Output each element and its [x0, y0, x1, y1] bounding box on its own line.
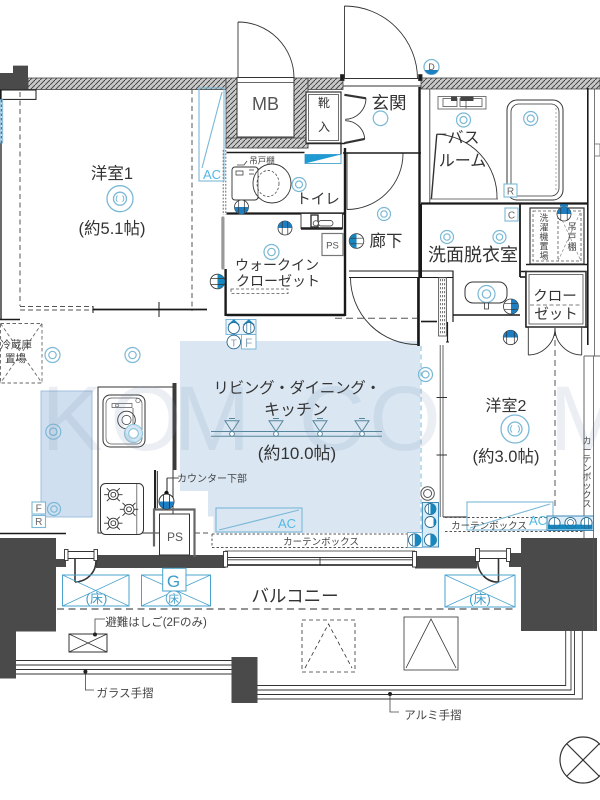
svg-text:(床): (床)	[86, 591, 108, 606]
svg-text:C: C	[508, 211, 515, 222]
svg-text:PS: PS	[326, 241, 339, 252]
svg-text:吊戸棚: 吊戸棚	[249, 156, 275, 166]
svg-text:洗面脱衣室: 洗面脱衣室	[428, 245, 518, 265]
svg-text:バス: バス	[447, 130, 479, 147]
svg-text:M: M	[550, 368, 600, 470]
svg-text:ガラス手摺: ガラス手摺	[96, 686, 153, 700]
svg-text:AC: AC	[529, 513, 547, 528]
svg-text:PS: PS	[167, 530, 183, 544]
svg-text:R: R	[35, 517, 42, 528]
svg-text:洋室2: 洋室2	[486, 397, 527, 415]
svg-text:R: R	[507, 187, 514, 198]
svg-text:D: D	[428, 62, 435, 72]
svg-text:ゼット: ゼット	[534, 306, 578, 323]
svg-text:カウンター下部: カウンター下部	[177, 472, 247, 485]
svg-text:冷蔵庫: 冷蔵庫	[1, 338, 33, 351]
svg-text:AC: AC	[278, 516, 296, 531]
svg-text:O: O	[110, 368, 182, 470]
svg-text:K: K	[41, 368, 102, 470]
svg-text:MB: MB	[252, 94, 279, 114]
svg-text:吊戸棚: 吊戸棚	[567, 222, 576, 252]
svg-text:F: F	[36, 504, 42, 515]
svg-text:玄関: 玄関	[372, 93, 407, 113]
svg-text:(床): (床)	[469, 592, 491, 607]
svg-text:トイレ: トイレ	[296, 192, 340, 208]
svg-text:C: C	[299, 368, 365, 470]
svg-text:バルコニー: バルコニー	[251, 586, 338, 606]
svg-text:カーテンボックス: カーテンボックス	[451, 521, 527, 532]
svg-text:クローゼット: クローゼット	[236, 273, 320, 289]
svg-text:クロー: クロー	[533, 288, 577, 305]
svg-text:(約3.0帖): (約3.0帖)	[473, 447, 540, 466]
svg-text:F: F	[245, 336, 252, 350]
svg-text:廊下: 廊下	[370, 232, 403, 251]
svg-text:洗濯機置場: 洗濯機置場	[539, 212, 548, 261]
svg-text:O: O	[369, 368, 441, 470]
svg-text:ルーム: ルーム	[439, 153, 487, 170]
svg-text:AC: AC	[203, 167, 221, 182]
svg-text:カーテンボックス: カーテンボックス	[283, 537, 359, 548]
svg-text:T: T	[231, 339, 237, 350]
svg-text:ウォークイン: ウォークイン	[235, 257, 319, 273]
svg-text:置場: 置場	[5, 352, 26, 365]
svg-text:靴: 靴	[318, 96, 330, 110]
svg-text:洋室1: 洋室1	[91, 164, 133, 183]
svg-text:G: G	[167, 572, 180, 591]
svg-text:アルミ手摺: アルミ手摺	[404, 708, 461, 722]
svg-text:床: 床	[168, 592, 179, 606]
svg-text:(約5.1帖): (約5.1帖)	[79, 219, 146, 238]
svg-text:M: M	[174, 368, 251, 470]
svg-text:避難はしご(2Fのみ): 避難はしご(2Fのみ)	[105, 615, 207, 629]
svg-text:入: 入	[318, 120, 330, 134]
